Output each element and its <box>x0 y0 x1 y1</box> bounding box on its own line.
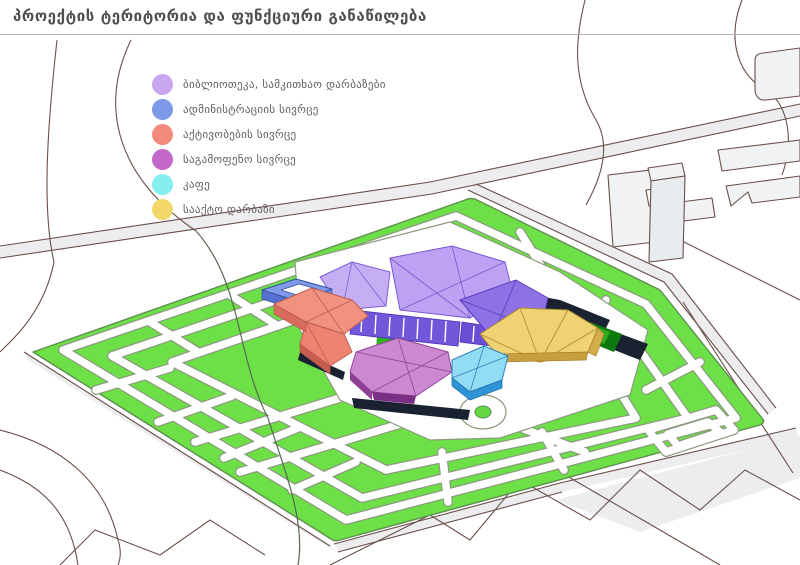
administration-swatch-icon <box>152 99 173 120</box>
legend-item-administration: ადმინისტრაციის სივრცე <box>152 99 386 120</box>
legend-label: კაფე <box>183 178 210 191</box>
legend: ბიბლიოთეკა, სამკითხაო დარბაზები ადმინისტ… <box>152 74 386 224</box>
legend-item-cafe: კაფე <box>152 174 386 195</box>
library-swatch-icon <box>152 74 173 95</box>
assembly-hall-swatch-icon <box>152 199 173 220</box>
legend-label: აქტივობების სივრცე <box>183 128 296 141</box>
activities-swatch-icon <box>152 124 173 145</box>
legend-label: საგამოფენო სივრცე <box>183 153 296 166</box>
exhibition-swatch-icon <box>152 149 173 170</box>
legend-item-activities: აქტივობების სივრცე <box>152 124 386 145</box>
cafe-swatch-icon <box>152 174 173 195</box>
legend-label: ადმინისტრაციის სივრცე <box>183 103 319 116</box>
legend-item-library: ბიბლიოთეკა, სამკითხაო დარბაზები <box>152 74 386 95</box>
legend-item-exhibition: საგამოფენო სივრცე <box>152 149 386 170</box>
title-divider <box>0 34 800 35</box>
site-plan-illustration <box>0 0 800 565</box>
legend-label: სააქტო დარბაზი <box>183 203 275 216</box>
legend-label: ბიბლიოთეკა, სამკითხაო დარბაზები <box>183 78 386 91</box>
legend-item-assembly-hall: სააქტო დარბაზი <box>152 199 386 220</box>
page-title: პროექტის ტერიტორია და ფუნქციური განაწილე… <box>13 7 427 25</box>
site-plan-page: პროექტის ტერიტორია და ფუნქციური განაწილე… <box>0 0 800 565</box>
